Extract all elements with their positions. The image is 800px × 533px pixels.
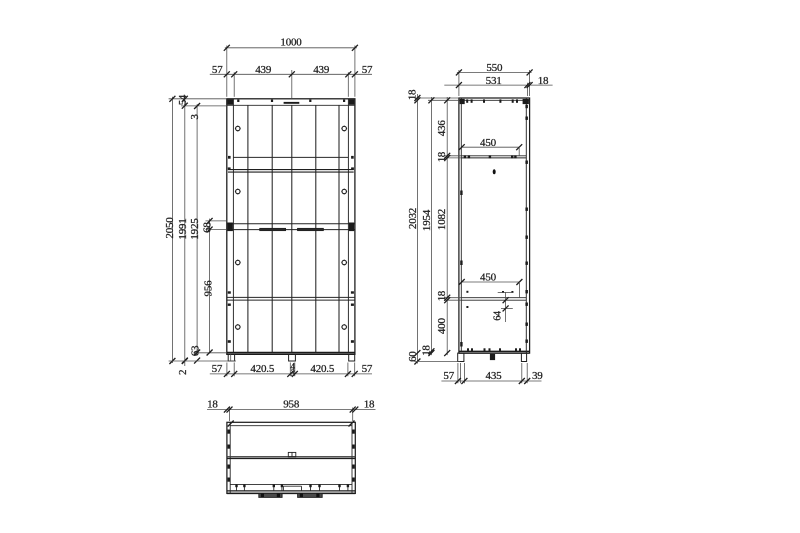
svg-text:1082: 1082 [436, 209, 448, 230]
svg-text:450: 450 [480, 272, 497, 284]
svg-text:57: 57 [443, 370, 454, 382]
svg-text:1954: 1954 [421, 209, 433, 231]
svg-text:18: 18 [364, 399, 375, 411]
svg-text:956: 956 [203, 280, 215, 297]
svg-text:2050: 2050 [164, 217, 176, 239]
svg-text:18: 18 [407, 89, 419, 100]
svg-text:1925: 1925 [189, 218, 201, 240]
svg-text:439: 439 [255, 64, 272, 76]
svg-text:60: 60 [407, 351, 419, 362]
svg-text:531: 531 [486, 75, 502, 87]
svg-text:420.5: 420.5 [310, 363, 334, 375]
svg-text:57: 57 [362, 363, 373, 375]
svg-text:3: 3 [290, 368, 295, 378]
svg-text:68: 68 [202, 222, 214, 233]
svg-text:2032: 2032 [407, 208, 419, 229]
svg-text:18: 18 [421, 345, 433, 356]
svg-text:18: 18 [538, 75, 549, 87]
svg-text:18: 18 [207, 399, 218, 411]
svg-text:63: 63 [189, 345, 201, 356]
svg-text:439: 439 [313, 64, 330, 76]
svg-text:400: 400 [436, 318, 448, 335]
svg-text:39: 39 [532, 370, 543, 382]
svg-text:1000: 1000 [280, 37, 302, 49]
svg-text:54: 54 [177, 94, 189, 105]
svg-text:958: 958 [283, 399, 300, 411]
svg-text:57: 57 [212, 64, 223, 76]
svg-text:18: 18 [436, 151, 448, 162]
svg-text:3: 3 [189, 114, 201, 120]
svg-text:420.5: 420.5 [250, 363, 274, 375]
svg-text:436: 436 [436, 120, 448, 137]
svg-text:57: 57 [362, 64, 373, 76]
svg-text:57: 57 [212, 363, 223, 375]
svg-text:2: 2 [177, 370, 189, 375]
svg-text:550: 550 [486, 62, 503, 74]
svg-text:435: 435 [486, 370, 503, 382]
svg-text:1991: 1991 [177, 218, 189, 239]
svg-text:64: 64 [492, 311, 503, 321]
svg-text:18: 18 [436, 290, 448, 301]
svg-text:450: 450 [480, 137, 497, 149]
